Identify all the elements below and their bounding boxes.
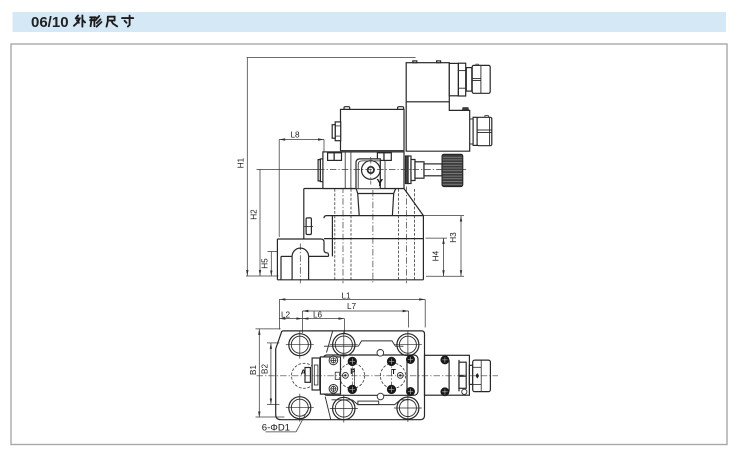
svg-text:06/10: 06/10 (31, 14, 69, 31)
svg-text:Y: Y (377, 178, 384, 189)
svg-text:T: T (391, 367, 396, 376)
svg-text:L6: L6 (313, 311, 323, 320)
svg-text:H1: H1 (237, 157, 246, 168)
svg-text:H4: H4 (432, 250, 441, 261)
svg-text:H3: H3 (449, 232, 458, 243)
svg-text:L8: L8 (290, 131, 300, 140)
svg-text:6-ΦD1: 6-ΦD1 (262, 423, 290, 434)
svg-text:L7: L7 (347, 302, 357, 311)
svg-text:B1: B1 (249, 365, 258, 375)
svg-text:H2: H2 (250, 209, 259, 220)
svg-text:L1: L1 (341, 291, 351, 300)
svg-text:B2: B2 (260, 364, 269, 374)
svg-text:L2: L2 (281, 311, 291, 320)
svg-text:A: A (301, 367, 307, 376)
svg-text:H5: H5 (261, 258, 270, 269)
